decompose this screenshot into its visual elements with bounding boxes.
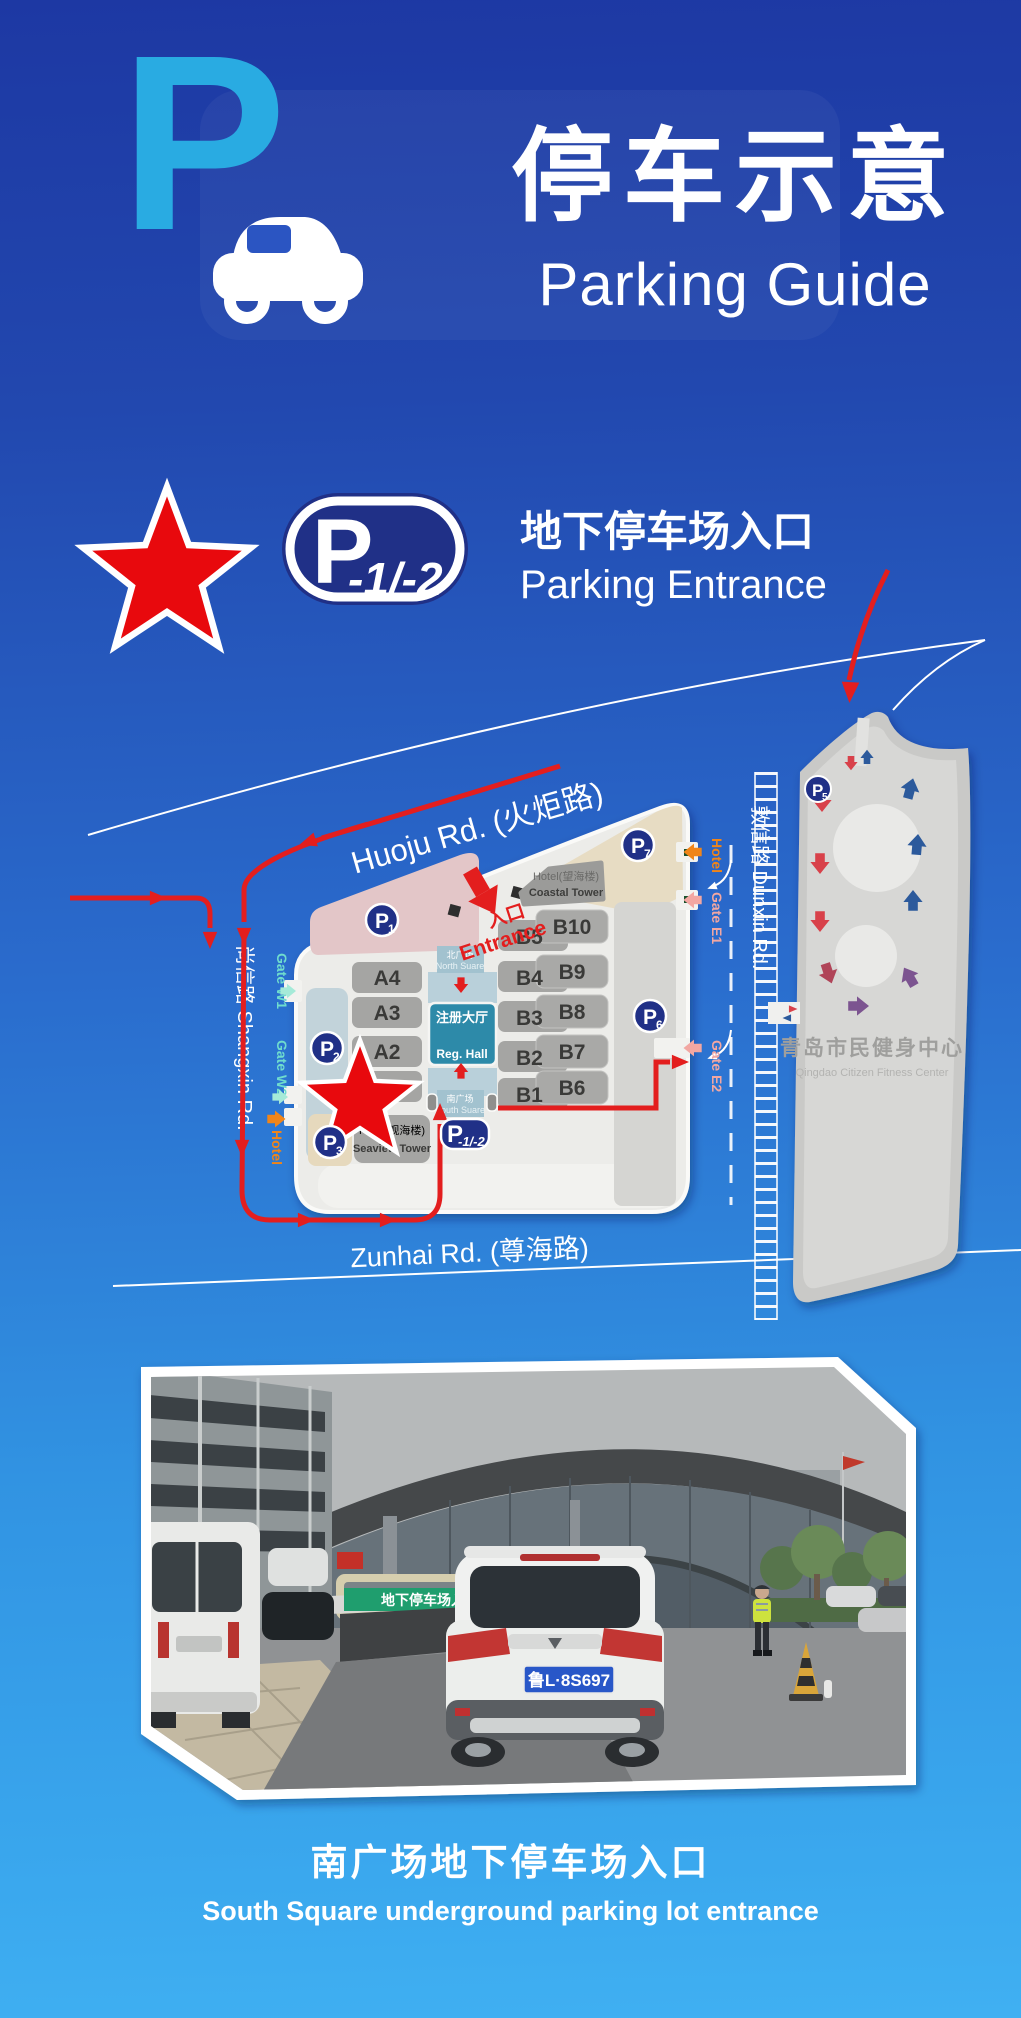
svg-text:2: 2 [333,1050,340,1064]
svg-text:P: P [631,835,645,858]
hall-b6-label: B6 [559,1077,586,1100]
gate-w1-label: Gate W1 [274,953,290,1009]
dark-car [262,1592,334,1640]
svg-text:P: P [643,1006,657,1029]
parking-badge-p5: P 5 [805,776,831,803]
map-and-photo-canvas: P -1/-2 Huoju Rd. (火炬路) 尚信路 Shangxin Rd.… [0,0,1021,2018]
reg-hall-zh: 注册大厅 [436,1010,488,1025]
fitness-label-english: Qingdao Citizen Fitness Center [796,1067,949,1079]
legend-badge-sub: -1/-2 [348,553,443,605]
hall-b2-label: B2 [516,1047,543,1070]
svg-text:-1/-2: -1/-2 [458,1134,486,1149]
svg-text:3: 3 [336,1144,343,1158]
pedestrian-link [768,1002,800,1024]
hall-b4-label: B4 [516,967,543,990]
svg-text:P: P [323,1132,337,1155]
svg-text:5: 5 [822,792,828,803]
turn-hint-arrows [706,860,731,1062]
zunhai-road-label: Zunhai Rd. (尊海路) [350,1233,590,1273]
svg-text:P: P [375,910,389,933]
caption-english: South Square underground parking lot ent… [0,1896,1021,1927]
caption-chinese: 南广场地下停车场入口 [0,1832,1021,1886]
parking-badge-p3: P 3 [314,1126,346,1158]
gate-e1-label: Gate E1 [709,892,725,944]
coastal-en-label: Coastal Tower [529,887,604,899]
hotel-west-arrow-icon [267,1111,285,1128]
bollard-right [487,1094,497,1111]
parking-badge-p2: P 2 [311,1032,343,1064]
bollard-left [427,1094,437,1111]
license-plate-text: 鲁L·8S697 [528,1670,610,1690]
fitness-label-chinese: 青岛市民健身中心 [780,1036,964,1060]
hall-b10-label: B10 [553,916,592,939]
gate-e2-label: Gate E2 [709,1040,725,1092]
dunxin-road-label: 敦信路 Dunxin Rd. [748,805,771,970]
hotel-west-label: Hotel [269,1130,285,1165]
hotel-east-label: Hotel [709,838,725,873]
hall-b7-label: B7 [559,1041,586,1064]
hall-a4-label: A4 [374,967,401,990]
parking-badge-p7: P 7 [622,829,654,861]
small-red-sign [337,1552,363,1569]
legend-star-icon [83,487,250,646]
svg-text:P: P [320,1038,334,1061]
north-square-en: North Suare [436,961,485,971]
hall-b9-label: B9 [559,961,586,984]
suv: 鲁L·8S697 [446,1546,664,1767]
svg-text:1: 1 [388,922,395,936]
parking-badge-p1: P 1 [366,904,398,936]
legend-parking-badge: P -1/-2 [282,493,468,605]
reg-hall: 注册大厅 Reg. Hall [429,1003,496,1065]
hall-a2-label: A2 [374,1041,401,1064]
parking-badge-p6: P 6 [634,1000,666,1032]
white-car-far [268,1548,328,1586]
photo-south-square-entrance: 地下停车场入口 [130,1357,921,1800]
coastal-zh-label: Hotel(望海楼) [533,869,599,883]
parking-guide-poster: P 停车示意 Parking Guide 地下停车场入口 Parking Ent… [0,0,1021,2018]
gate-w2-label: Gate W2 [274,1040,290,1096]
hall-a3-label: A3 [374,1002,401,1025]
svg-text:6: 6 [656,1018,663,1032]
south-square-zh: 南广场 [446,1093,473,1104]
hall-b8-label: B8 [559,1001,586,1024]
svg-text:7: 7 [644,847,651,861]
reg-hall-en: Reg. Hall [436,1047,487,1061]
parking-badge-p-1-2: P -1/-2 [441,1119,489,1149]
photo-caption: 南广场地下停车场入口 South Square underground park… [0,1832,1021,1927]
hall-b1-label: B1 [516,1084,543,1107]
hall-b3-label: B3 [516,1007,543,1030]
